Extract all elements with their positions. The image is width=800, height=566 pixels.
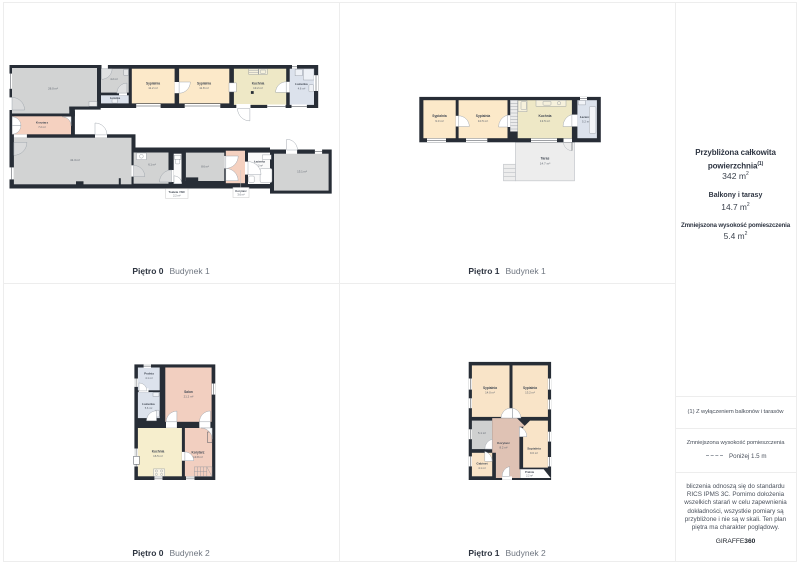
svg-text:4.2 m²: 4.2 m² [110,77,118,81]
svg-text:Korytarz: Korytarz [235,189,247,193]
svg-text:8.6 m²: 8.6 m² [201,165,209,169]
svg-text:9.6 m²: 9.6 m² [530,451,538,455]
svg-text:13.1 m²: 13.1 m² [297,170,307,174]
svg-text:13.2 m²: 13.2 m² [525,391,535,395]
svg-text:Sypialnia: Sypialnia [146,81,160,85]
svg-text:21.2 m²: 21.2 m² [184,395,194,399]
svg-text:4.1 m²: 4.1 m² [478,466,486,470]
svg-text:Kuchnia: Kuchnia [538,114,551,118]
svg-text:11.2 m²: 11.2 m² [148,86,158,90]
svg-text:5.6 m²: 5.6 m² [145,406,153,410]
svg-text:10.5 m²: 10.5 m² [478,119,488,123]
svg-text:Toaleta / WC: Toaleta / WC [169,190,186,194]
svg-text:Salon: Salon [184,390,193,394]
svg-text:9.0 m²: 9.0 m² [435,119,444,123]
svg-text:8.2 m²: 8.2 m² [500,446,508,450]
svg-text:13.5 m²: 13.5 m² [540,119,550,123]
svg-text:5.1 m²: 5.1 m² [478,431,486,435]
svg-text:14.0 m²: 14.0 m² [485,391,495,395]
svg-text:Korytarz: Korytarz [497,441,510,445]
svg-text:Sypialnia: Sypialnia [523,386,537,390]
svg-text:16.5 m²: 16.5 m² [153,454,163,458]
svg-text:Pralnia: Pralnia [144,372,154,376]
svg-text:Kuchnia: Kuchnia [152,449,165,453]
svg-text:Gabinet: Gabinet [476,461,487,465]
svg-text:Kuchnia: Kuchnia [252,81,265,85]
svg-text:Łazienka: Łazienka [254,160,266,164]
svg-text:26.0 m²: 26.0 m² [48,87,58,91]
svg-text:Sypialnia: Sypialnia [432,114,447,118]
svg-text:Łazienka: Łazienka [295,82,308,86]
svg-text:2.2 m²: 2.2 m² [526,474,533,477]
svg-text:Sypialnia: Sypialnia [476,114,491,118]
svg-text:Sypialnia: Sypialnia [527,447,541,451]
svg-text:41.3 m²: 41.3 m² [70,158,80,162]
svg-text:3.6 m²: 3.6 m² [237,193,244,197]
svg-text:14.7 m²: 14.7 m² [540,162,551,166]
svg-text:Korytarz: Korytarz [36,120,49,124]
svg-text:Taras: Taras [541,157,550,161]
svg-text:6.1 m²: 6.1 m² [148,163,156,167]
svg-text:Łazienka: Łazienka [142,402,155,406]
svg-text:4.6 m²: 4.6 m² [298,86,306,90]
svg-text:Korytarz: Korytarz [192,450,205,454]
svg-text:5.2 m²: 5.2 m² [582,119,590,123]
svg-text:11.8 m²: 11.8 m² [199,86,209,90]
svg-text:13.8 m²: 13.8 m² [193,455,203,459]
svg-text:13.2 m²: 13.2 m² [253,86,263,90]
svg-text:Sypialnia: Sypialnia [483,386,497,390]
svg-text:2.2 m²: 2.2 m² [173,194,180,198]
svg-text:7.2 m²: 7.2 m² [38,125,46,129]
svg-text:Sypialnia: Sypialnia [197,81,211,85]
svg-text:4.1 m²: 4.1 m² [145,376,153,380]
